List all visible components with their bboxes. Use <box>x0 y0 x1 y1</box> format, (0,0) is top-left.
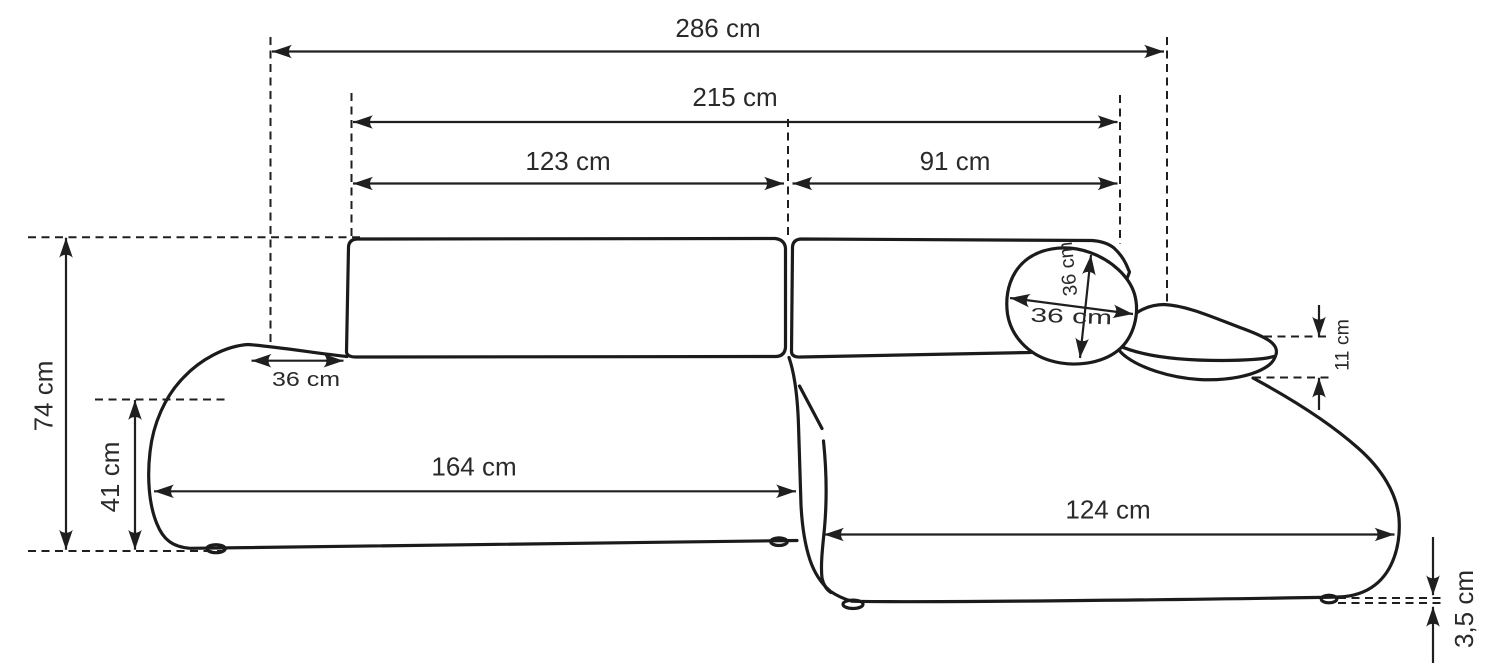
svg-text:36 cm: 36 cm <box>1030 304 1112 329</box>
svg-text:11 cm: 11 cm <box>1332 319 1354 371</box>
svg-text:215 cm: 215 cm <box>692 82 777 112</box>
svg-text:36 cm: 36 cm <box>272 368 340 390</box>
svg-text:74 cm: 74 cm <box>29 361 59 432</box>
svg-text:123 cm: 123 cm <box>525 146 610 176</box>
svg-text:164 cm: 164 cm <box>431 452 516 482</box>
svg-text:91 cm: 91 cm <box>920 146 991 176</box>
svg-text:3,5 cm: 3,5 cm <box>1449 570 1479 648</box>
svg-text:124 cm: 124 cm <box>1065 495 1150 525</box>
svg-text:41 cm: 41 cm <box>95 442 125 513</box>
svg-text:286 cm: 286 cm <box>675 13 760 43</box>
